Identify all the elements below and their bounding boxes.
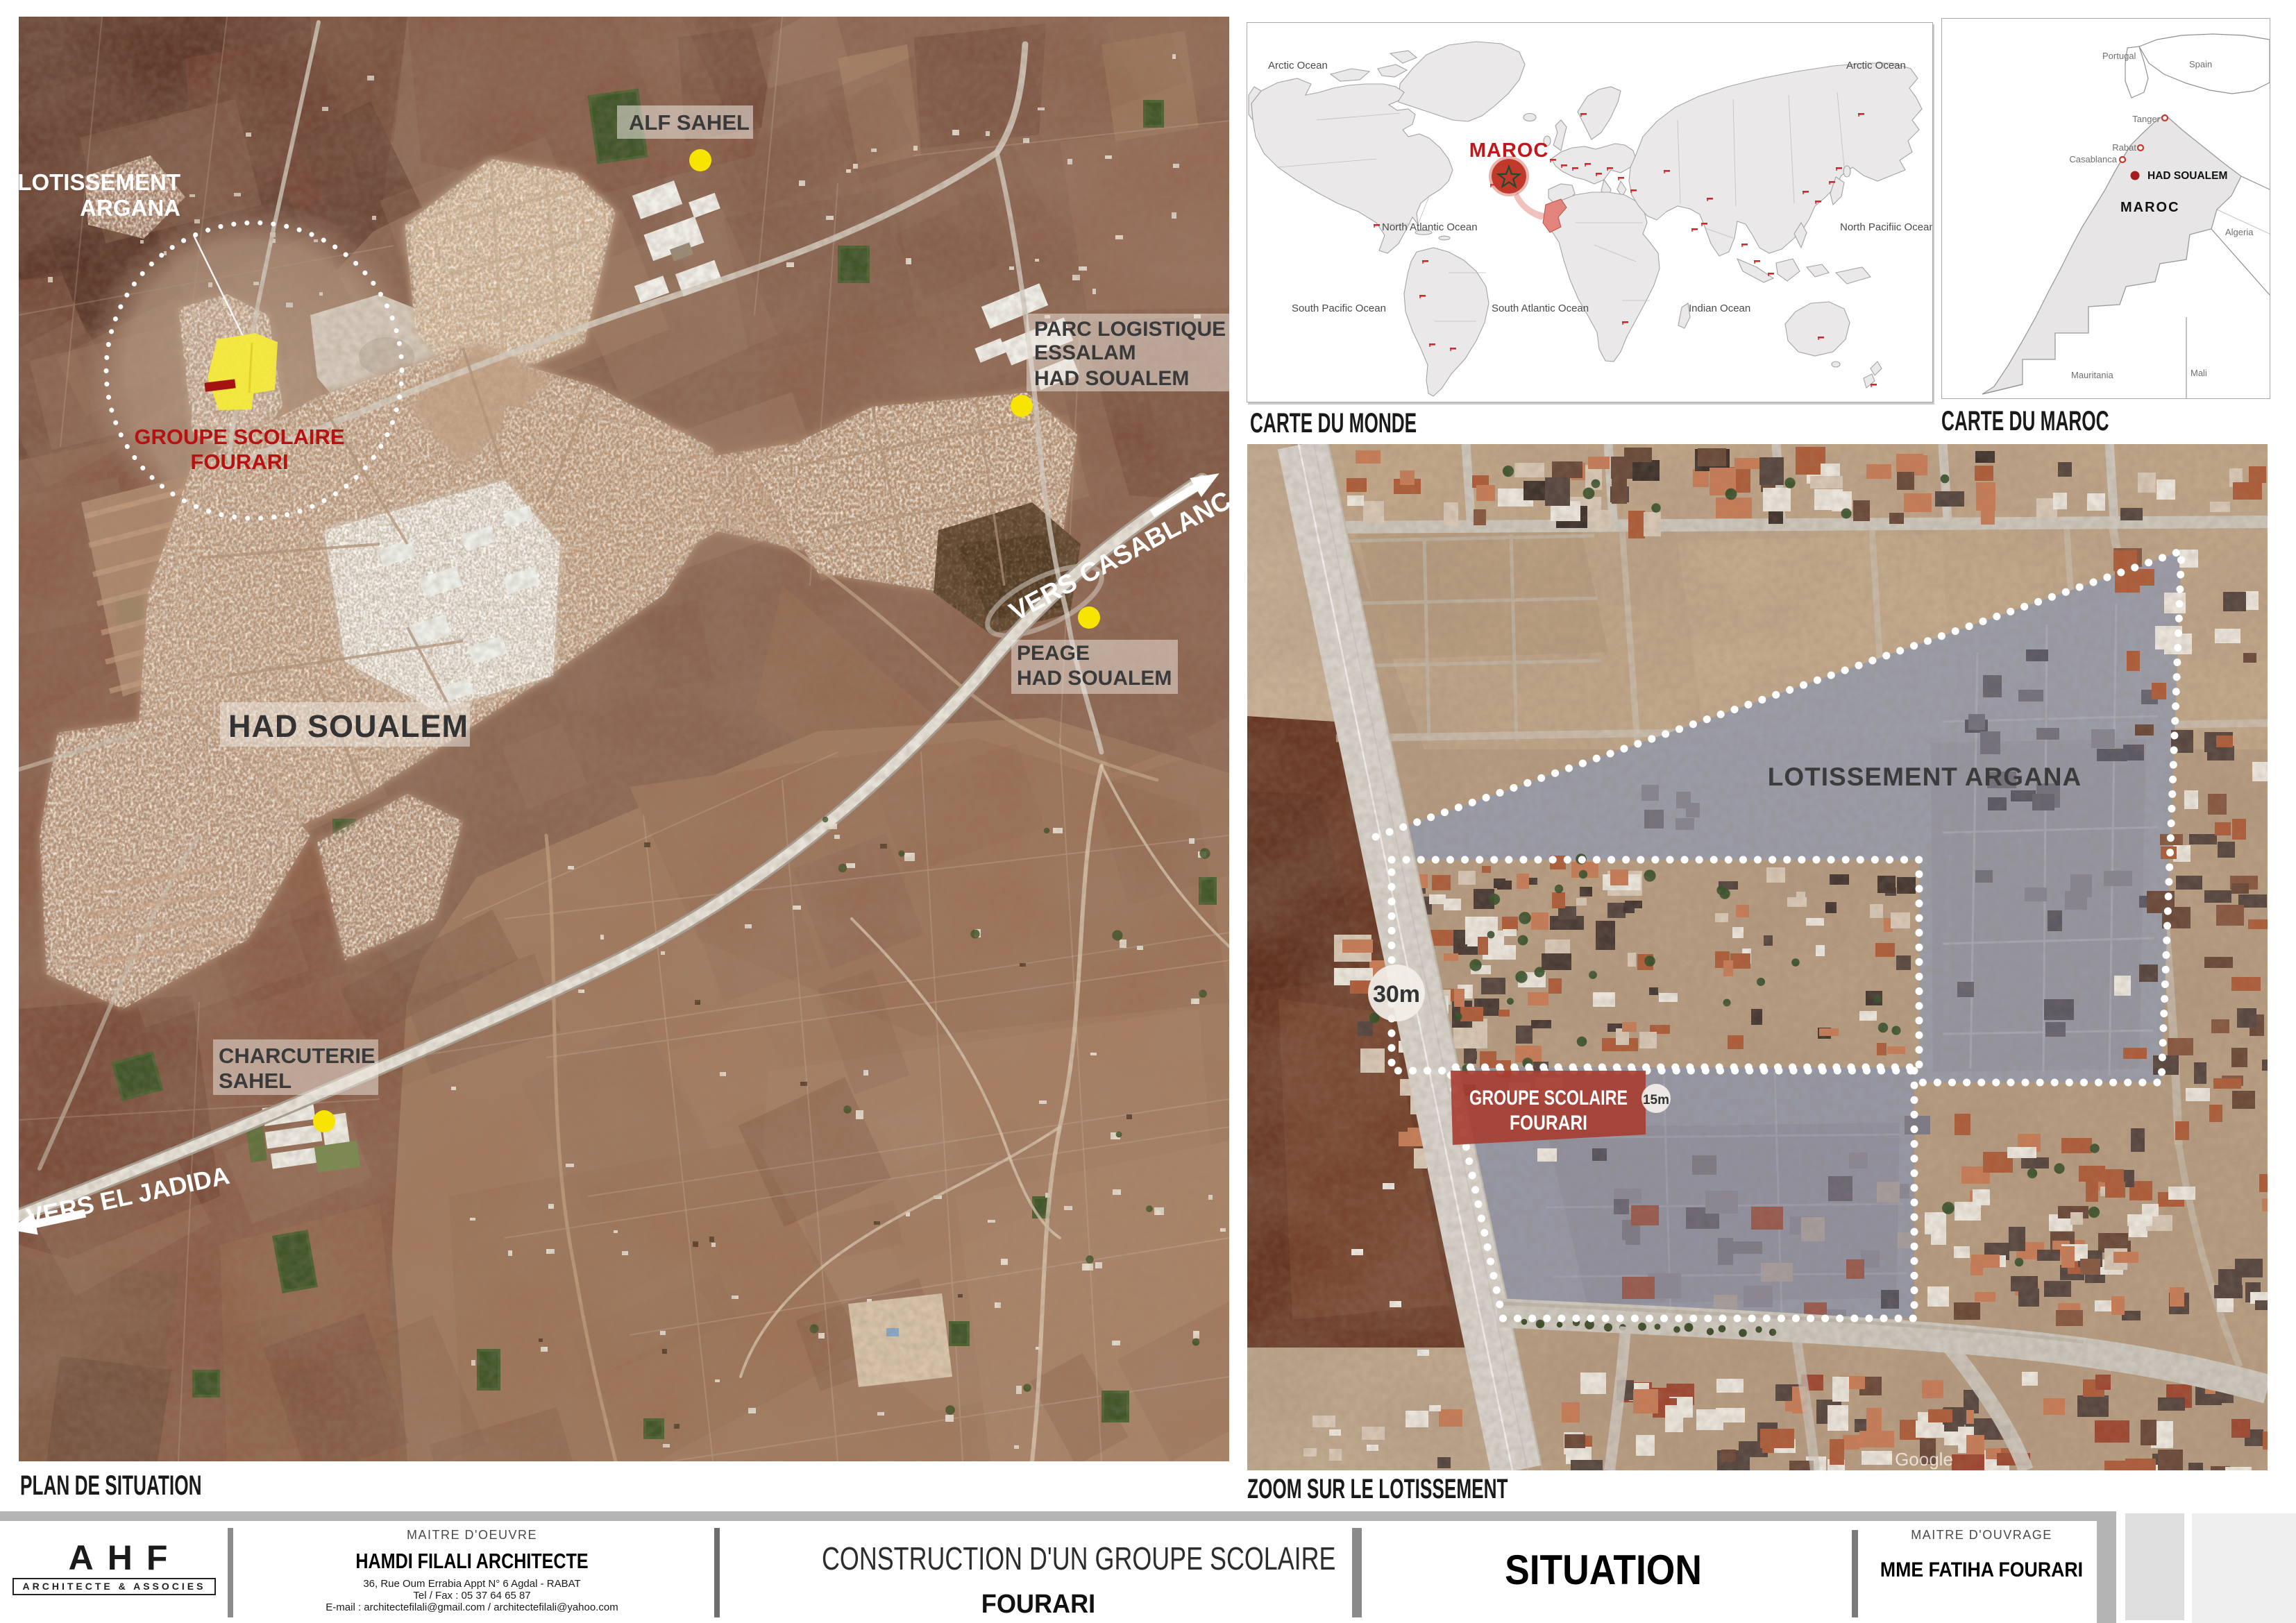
- svg-text:Portugal: Portugal: [2102, 51, 2136, 61]
- svg-text:South Pacific Ocean: South Pacific Ocean: [1292, 303, 1386, 314]
- svg-text:HAD SOUALEM: HAD SOUALEM: [1034, 367, 1189, 390]
- svg-text:ALF SAHEL: ALF SAHEL: [629, 110, 750, 135]
- svg-text:SAHEL: SAHEL: [219, 1069, 292, 1093]
- svg-text:HAD SOUALEM: HAD SOUALEM: [1017, 667, 1172, 690]
- svg-text:Tanger: Tanger: [2132, 114, 2160, 124]
- svg-text:ESSALAM: ESSALAM: [1034, 341, 1136, 364]
- svg-text:LOTISSEMENT: LOTISSEMENT: [19, 169, 180, 195]
- svg-text:FOURARI: FOURARI: [1510, 1112, 1587, 1135]
- svg-text:HAD SOUALEM: HAD SOUALEM: [2147, 170, 2227, 182]
- svg-text:Algeria: Algeria: [2225, 227, 2254, 237]
- svg-text:North Atlantic Ocean: North Atlantic Ocean: [1382, 221, 1478, 233]
- svg-text:North Pacifiic Ocean: North Pacifiic Ocean: [1840, 221, 1932, 233]
- svg-text:Google: Google: [1895, 1449, 1953, 1470]
- svg-text:Arctic Ocean: Arctic Ocean: [1268, 60, 1328, 71]
- svg-text:Rabat: Rabat: [2112, 142, 2136, 153]
- svg-text:MAROC: MAROC: [2120, 200, 2180, 215]
- svg-text:30m: 30m: [1373, 981, 1420, 1008]
- svg-text:CHARCUTERIE: CHARCUTERIE: [219, 1044, 375, 1068]
- svg-text:15m: 15m: [1643, 1093, 1669, 1107]
- svg-text:South Atlantic Ocean: South Atlantic Ocean: [1492, 303, 1589, 314]
- svg-text:Mali: Mali: [2191, 368, 2207, 378]
- svg-text:Mauritania: Mauritania: [2071, 370, 2113, 380]
- svg-text:GROUPE SCOLAIRE: GROUPE SCOLAIRE: [134, 425, 344, 449]
- svg-text:MAROC: MAROC: [1469, 139, 1549, 162]
- svg-text:GROUPE SCOLAIRE: GROUPE SCOLAIRE: [1469, 1087, 1628, 1110]
- svg-text:PARC LOGISTIQUE: PARC LOGISTIQUE: [1034, 318, 1226, 341]
- svg-text:LOTISSEMENT ARGANA: LOTISSEMENT ARGANA: [1768, 763, 2082, 791]
- svg-text:Arctic Ocean: Arctic Ocean: [1846, 60, 1906, 71]
- svg-text:FOURARI: FOURARI: [190, 450, 288, 474]
- svg-text:ARGANA: ARGANA: [80, 195, 180, 221]
- svg-text:Indian Ocean: Indian Ocean: [1689, 303, 1750, 314]
- svg-text:HAD SOUALEM: HAD SOUALEM: [228, 708, 469, 744]
- svg-text:Spain: Spain: [2189, 59, 2212, 69]
- svg-text:PEAGE: PEAGE: [1017, 642, 1090, 665]
- svg-text:Casablanca: Casablanca: [2069, 154, 2117, 164]
